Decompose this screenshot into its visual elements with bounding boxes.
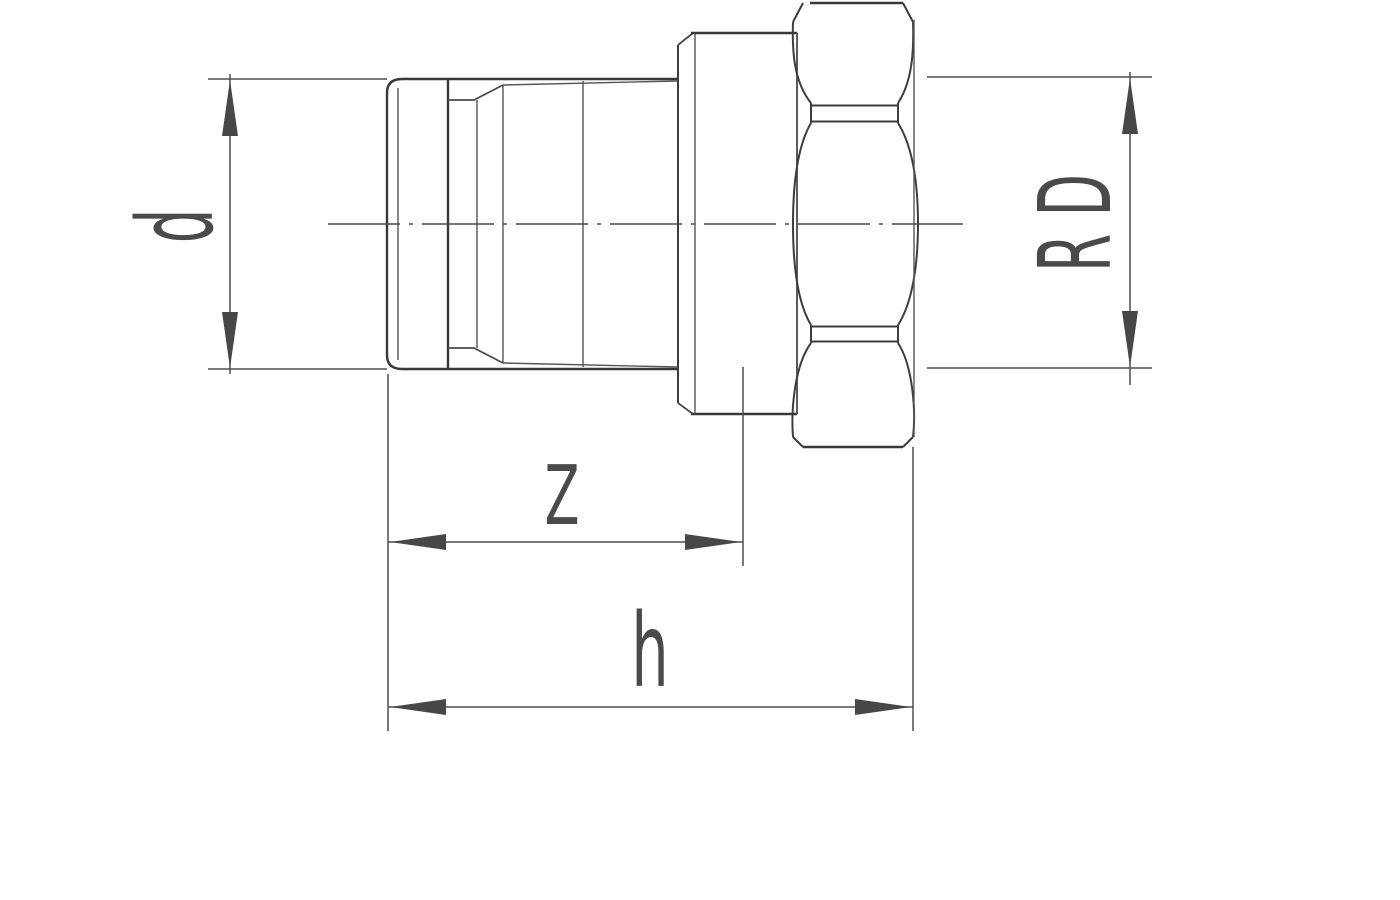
dim-label-d: d (115, 209, 237, 243)
z-arrow-left (390, 534, 446, 550)
dim-label-rd: R D (1018, 174, 1134, 272)
nut-upper-dome-right (898, 22, 913, 103)
d-arrow-down (222, 312, 238, 368)
dimension-h: h (388, 374, 913, 731)
nut-bottom-right-chamfer (903, 437, 913, 447)
dimension-z: Z (388, 367, 743, 566)
dim-label-z: Z (545, 449, 580, 544)
union-nut (792, 3, 918, 447)
dim-label-h: h (631, 592, 668, 711)
cone-bottom-slope-edge (503, 363, 678, 367)
rd-arrow-up (1122, 78, 1138, 134)
nut-lower-dome-right (898, 343, 914, 437)
step-top-edge (448, 85, 503, 100)
nut-top-right-chamfer (903, 3, 913, 22)
rd-arrow-down (1122, 311, 1138, 367)
technical-drawing: d R D Z h (0, 0, 1400, 900)
h-arrow-right (855, 699, 911, 715)
dimension-rd: R D (927, 72, 1152, 385)
nut-lower-dome-left (792, 343, 811, 437)
h-arrow-left (390, 699, 446, 715)
nut-bottom-left-chamfer (793, 437, 803, 447)
drawing-canvas: d R D Z h (0, 0, 1400, 900)
step-bottom-edge (448, 348, 503, 363)
collar-bottom-chamfer (678, 403, 693, 414)
nut-top-left-chamfer (793, 3, 803, 22)
cone-top-slope-edge (503, 81, 678, 85)
collar-top-chamfer (678, 33, 693, 45)
z-arrow-right (685, 534, 741, 550)
d-arrow-up (222, 80, 238, 136)
